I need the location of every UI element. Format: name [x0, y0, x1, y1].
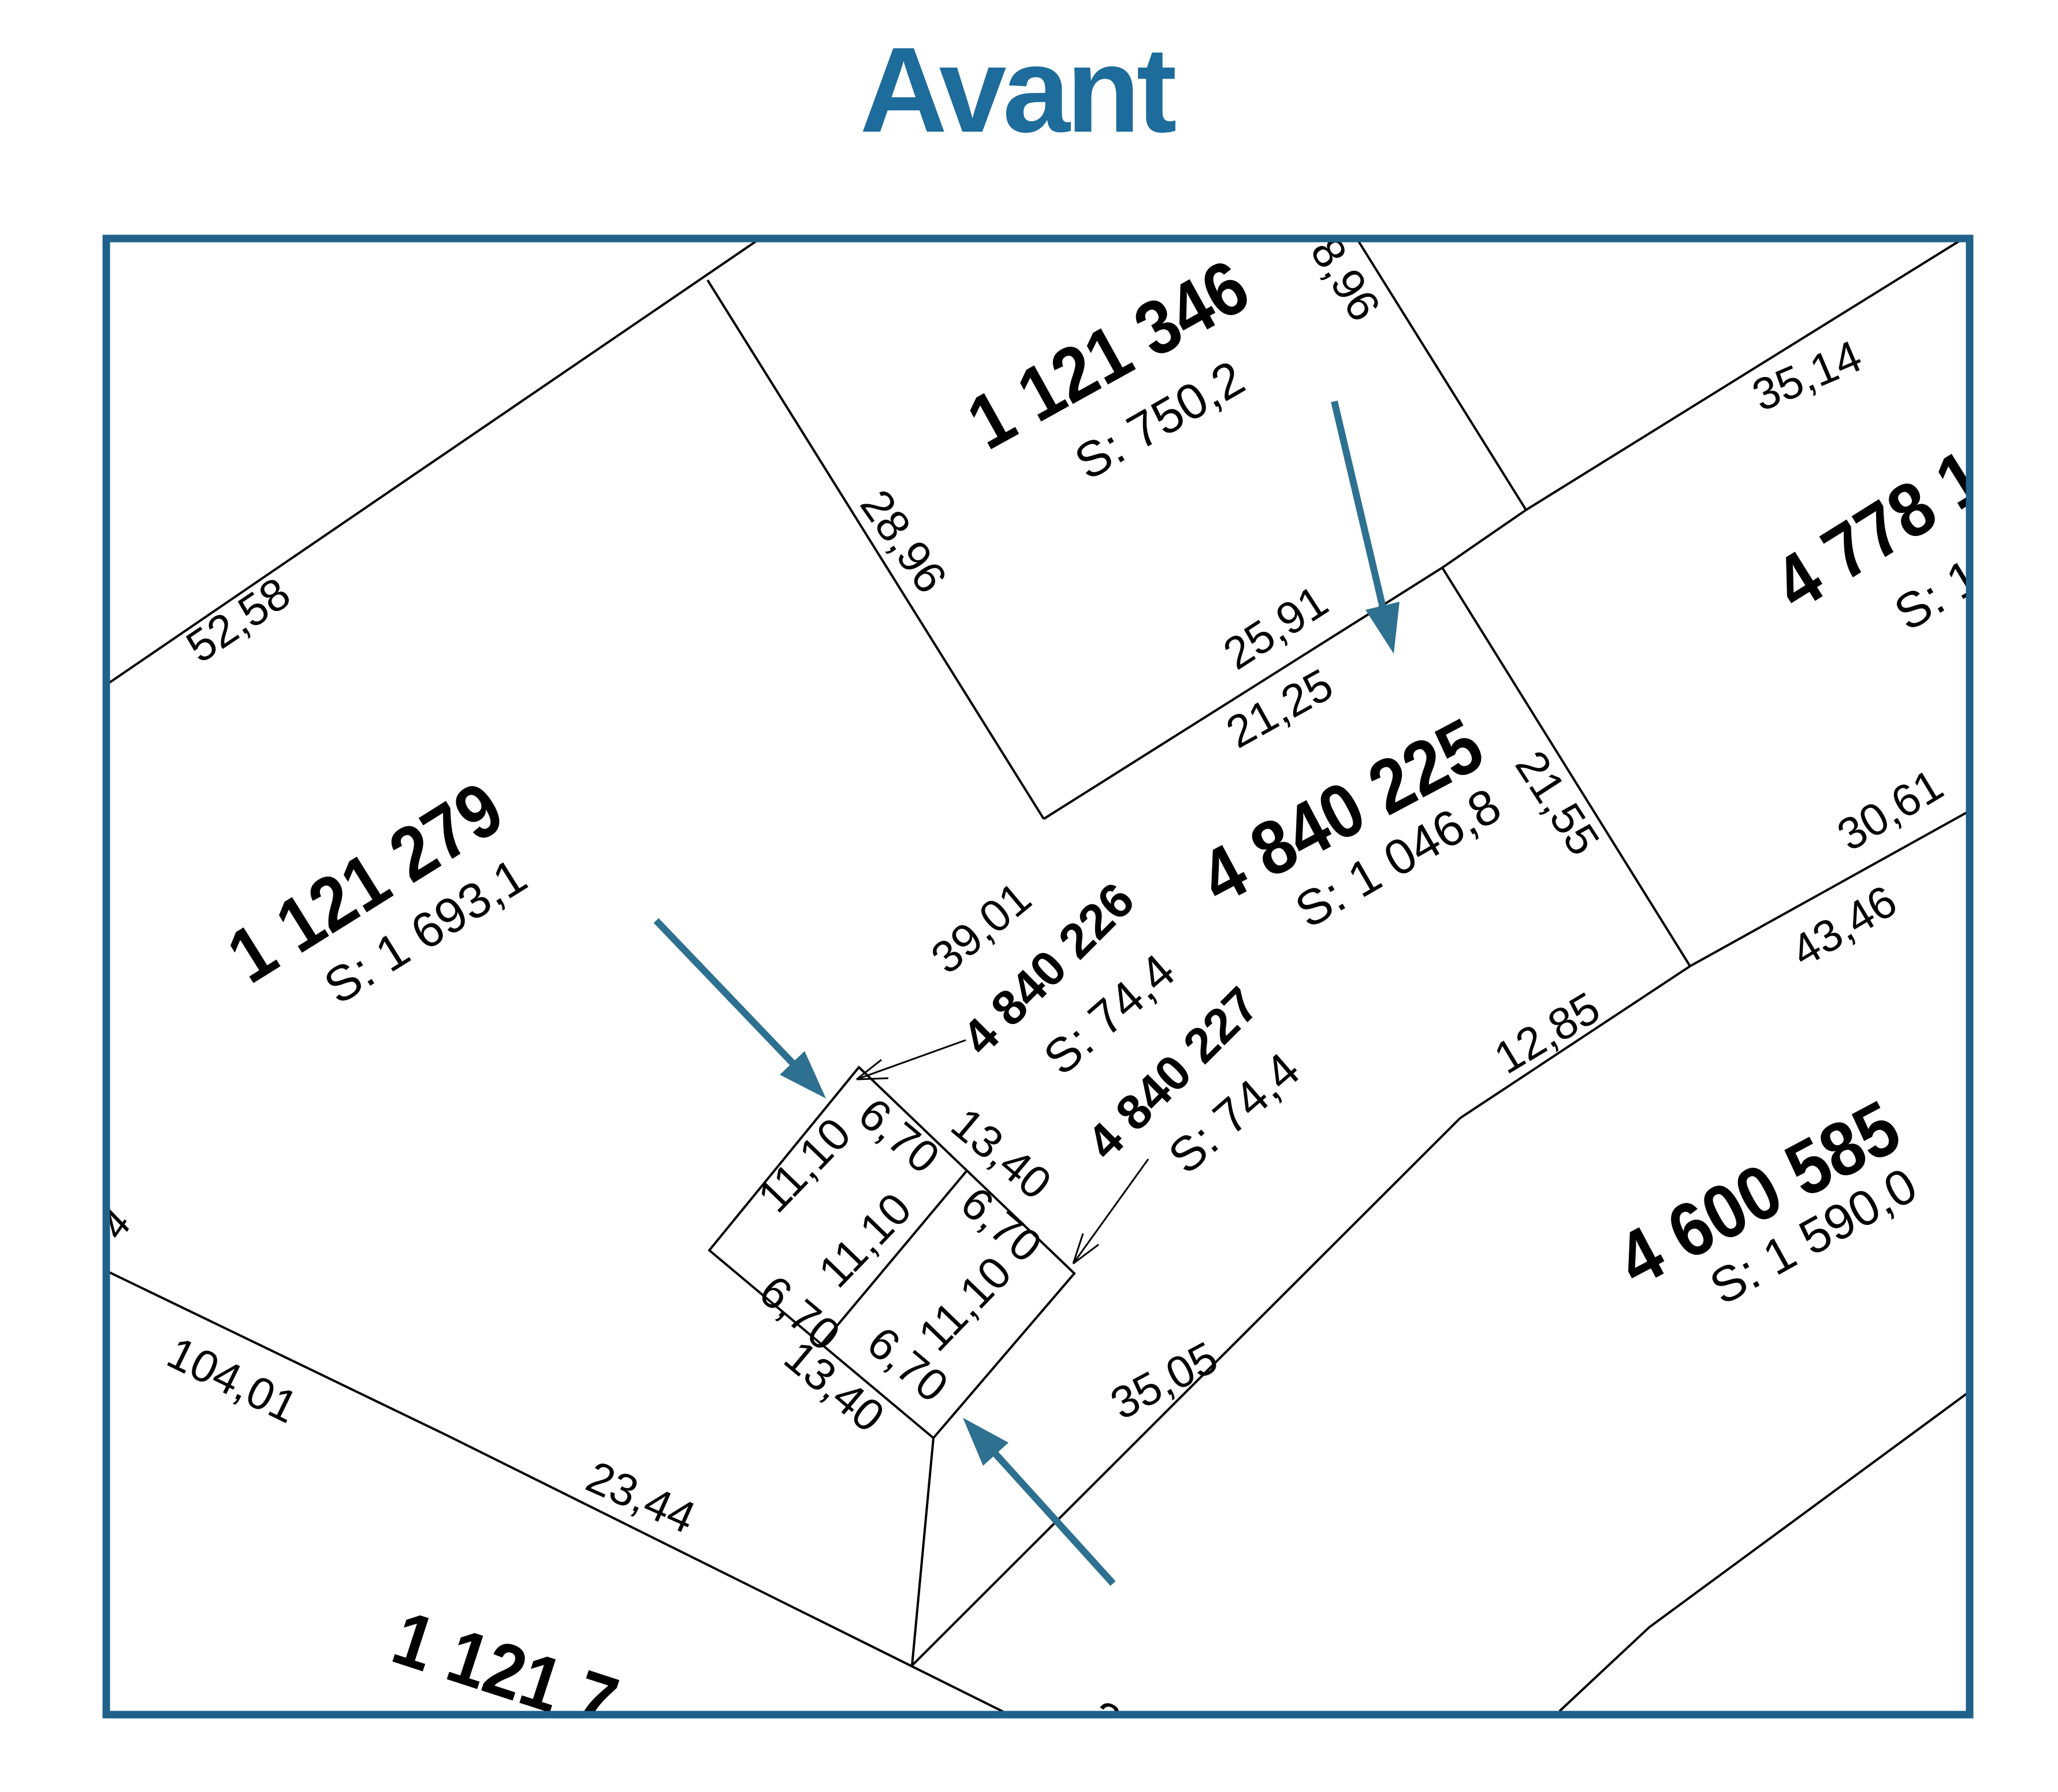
- svg-text:Avant: Avant: [860, 22, 1177, 158]
- svg-text:104,01: 104,01: [159, 1327, 306, 1433]
- svg-text:52,58: 52,58: [177, 567, 299, 672]
- svg-text:43,46: 43,46: [1782, 875, 1906, 977]
- svg-text:11,10: 11,10: [748, 1108, 861, 1222]
- svg-text:28,96: 28,96: [851, 480, 957, 602]
- svg-text:21,25: 21,25: [1218, 658, 1341, 758]
- svg-text:30,61: 30,61: [1829, 759, 1952, 860]
- svg-text:6,70: 6,70: [849, 1088, 949, 1183]
- svg-text:2: 2: [1084, 1690, 1127, 1747]
- svg-text:12,85: 12,85: [1486, 982, 1609, 1083]
- svg-text:23,44: 23,44: [579, 1451, 703, 1543]
- svg-text:11,10: 11,10: [909, 1247, 1021, 1361]
- svg-text:8,96: 8,96: [1301, 228, 1390, 329]
- svg-text:1 121 7: 1 121 7: [383, 1594, 627, 1746]
- svg-text:21,55: 21,55: [1506, 742, 1610, 864]
- svg-text:4: 4: [90, 1202, 140, 1247]
- svg-text:35,14: 35,14: [1745, 330, 1869, 421]
- svg-text:11,10: 11,10: [809, 1183, 921, 1297]
